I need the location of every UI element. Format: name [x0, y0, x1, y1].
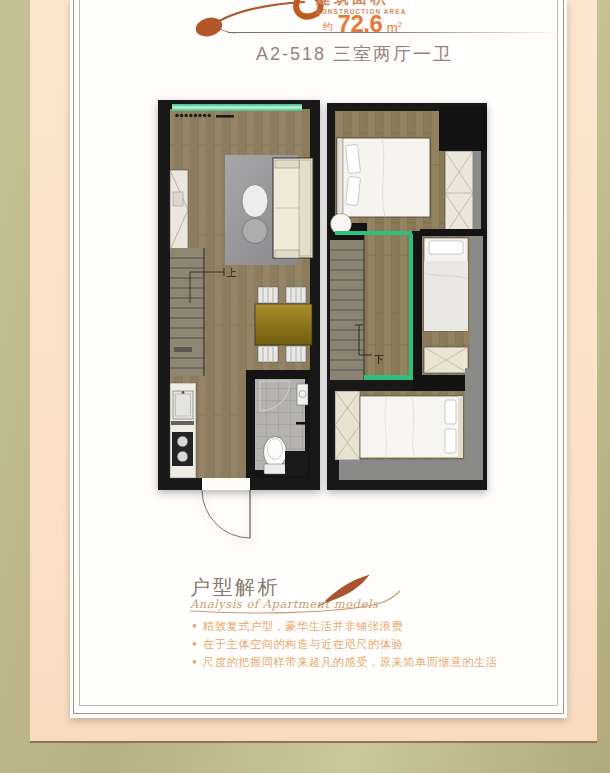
- dining-table: [255, 304, 312, 345]
- feather-flourish-icon: [188, 570, 406, 616]
- hatch-strip-right: [470, 236, 483, 375]
- floorplan-upper-level: 下: [327, 103, 487, 490]
- sofa: [273, 158, 313, 258]
- green-rail-bottom: [364, 375, 412, 380]
- tv-cabinet: [170, 170, 188, 250]
- bullet-item: ● 尺度的把握同样带来超凡的感受，原来简单而惬意的生活: [192, 656, 482, 668]
- toilet: [264, 437, 287, 468]
- bullet-item: ● 在于主体空间的构造与近在咫尺的体验: [192, 638, 482, 650]
- bathroom-sink: [297, 384, 308, 405]
- floorplan-lower-level: 上: [158, 100, 320, 555]
- green-rail-top: [335, 231, 412, 235]
- header-divider-line: [228, 32, 555, 33]
- poster-page: 建筑面积 CONSTRUCTION AREA 约 72.6 m2 A2-518 …: [0, 0, 610, 773]
- double-bed-bottom: [360, 396, 463, 458]
- single-bed: [424, 238, 468, 331]
- stair-note-smudge: [174, 347, 192, 352]
- master-bedroom: [335, 107, 487, 235]
- entry-door: [202, 478, 250, 538]
- double-bed-master: [337, 138, 430, 217]
- wardrobe-master: [445, 151, 481, 235]
- bullet-item: ● 精致复式户型，豪华生活并非铺张浪费: [192, 620, 482, 632]
- kitchen-counter: [170, 383, 196, 478]
- bathroom: [246, 370, 310, 478]
- staircase-lower: [170, 248, 204, 376]
- entry-door-arc: [202, 490, 250, 538]
- green-rail-side: [409, 234, 413, 380]
- stair-hall: 下: [330, 231, 413, 380]
- single-bed-room: [422, 236, 483, 375]
- construction-area-label-cn-cropped: 建筑面积: [316, 0, 400, 7]
- hatch-wall-right: [465, 368, 483, 480]
- bullet-dot-icon: ●: [192, 620, 197, 632]
- wardrobe-bottom-room: [335, 391, 360, 460]
- balcony-green-rail: [172, 104, 302, 111]
- stair-down-label: 下: [374, 354, 384, 365]
- bathroom-counter: [285, 451, 308, 476]
- bullet-dot-icon: ●: [192, 656, 197, 668]
- area-prefix: 约: [323, 21, 333, 32]
- bullet-dot-icon: ●: [192, 638, 197, 650]
- area-value: 约 72.6 m2: [298, 10, 402, 38]
- wardrobe-single-room: [424, 347, 468, 373]
- unit-code-title: A2-518 三室两厅一卫: [106, 42, 603, 66]
- hatch-wall-bottom: [339, 460, 465, 480]
- towel-bar-icon: [296, 422, 308, 425]
- stair-up-label: 上: [226, 267, 237, 278]
- analysis-bullet-list: ● 精致复式户型，豪华生活并非铺张浪费 ● 在于主体空间的构造与近在咫尺的体验 …: [192, 620, 482, 674]
- kitchen-note-smudge: [171, 421, 194, 425]
